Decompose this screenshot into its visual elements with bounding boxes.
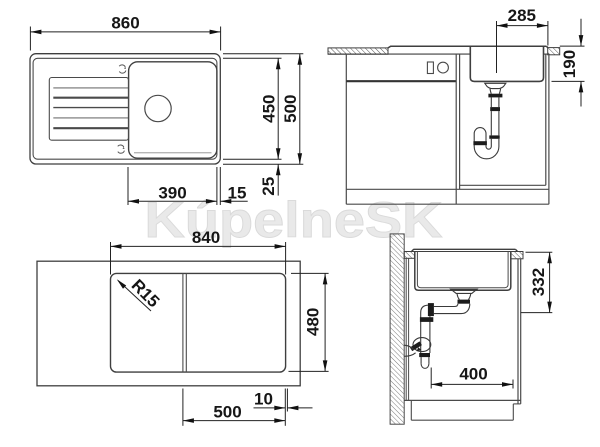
svg-text:400: 400 [459,365,487,384]
svg-text:15: 15 [228,183,247,202]
svg-text:500: 500 [213,402,241,421]
svg-text:450: 450 [259,95,278,123]
svg-text:500: 500 [281,95,300,123]
svg-text:840: 840 [192,228,220,247]
svg-text:390: 390 [158,183,186,202]
svg-text:25: 25 [259,177,278,196]
svg-text:285: 285 [508,6,536,25]
svg-text:332: 332 [529,268,548,296]
svg-text:190: 190 [560,50,579,78]
svg-text:10: 10 [254,389,273,408]
svg-text:860: 860 [111,14,139,33]
svg-text:480: 480 [304,308,323,336]
